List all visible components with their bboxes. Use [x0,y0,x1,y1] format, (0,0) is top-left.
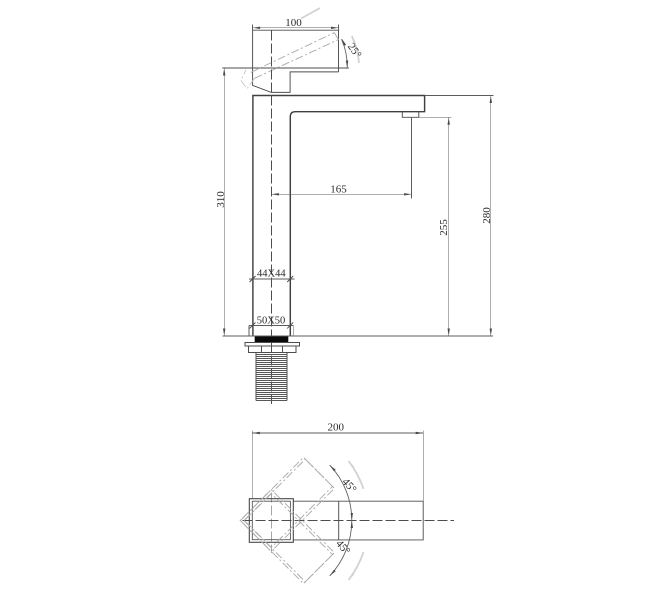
svg-text:44X44: 44X44 [257,268,286,279]
svg-text:310: 310 [215,191,227,208]
svg-text:165: 165 [330,183,347,195]
svg-text:50X50: 50X50 [257,316,286,327]
svg-text:100: 100 [285,17,302,29]
svg-text:255: 255 [438,219,450,236]
svg-text:280: 280 [481,207,493,224]
svg-text:200: 200 [328,422,345,434]
